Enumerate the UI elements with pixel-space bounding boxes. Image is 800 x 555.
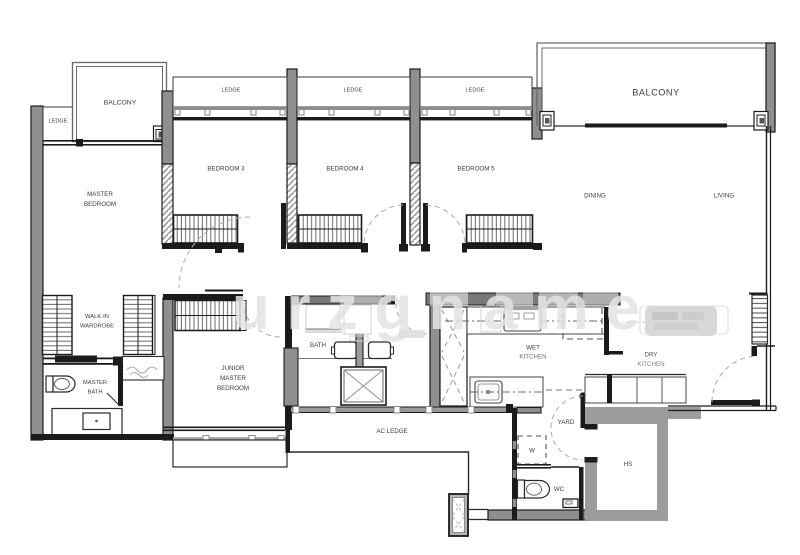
- svg-text:WET: WET: [526, 345, 540, 352]
- svg-text:YARD: YARD: [558, 419, 575, 426]
- svg-text:BALCONY: BALCONY: [632, 88, 679, 98]
- svg-text:W: W: [529, 448, 535, 455]
- svg-text:BATH: BATH: [87, 390, 102, 396]
- svg-text:BEDROOM: BEDROOM: [217, 385, 249, 392]
- svg-text:WALK-IN: WALK-IN: [85, 314, 109, 320]
- svg-text:BEDROOM: BEDROOM: [84, 201, 116, 208]
- svg-text:LEDGE: LEDGE: [344, 88, 363, 94]
- svg-text:LIVING: LIVING: [714, 193, 734, 200]
- svg-text:WARDROBE: WARDROBE: [80, 324, 114, 330]
- svg-text:BALCONY: BALCONY: [104, 100, 137, 107]
- svg-text:LEDGE: LEDGE: [222, 88, 241, 94]
- svg-text:BEDROOM 4: BEDROOM 4: [326, 166, 364, 173]
- svg-text:BEDROOM 3: BEDROOM 3: [207, 166, 245, 173]
- svg-text:LEDGE: LEDGE: [466, 88, 485, 94]
- svg-text:BATH: BATH: [310, 342, 326, 349]
- svg-text:AC LEDGE: AC LEDGE: [376, 428, 407, 435]
- svg-text:KITCHEN: KITCHEN: [519, 354, 546, 361]
- svg-text:BEDROOM 5: BEDROOM 5: [457, 166, 495, 173]
- svg-text:WC: WC: [554, 486, 565, 493]
- svg-text:MASTER: MASTER: [87, 191, 113, 198]
- svg-text:HS: HS: [624, 461, 633, 468]
- svg-text:MASTER: MASTER: [220, 375, 246, 382]
- svg-text:KITCHEN: KITCHEN: [637, 361, 664, 368]
- svg-text:JUNIOR: JUNIOR: [221, 365, 245, 372]
- svg-text:MASTER: MASTER: [83, 380, 107, 386]
- svg-text:DINING: DINING: [584, 193, 606, 200]
- svg-text:DRY: DRY: [645, 352, 658, 359]
- svg-text:urzgname: urzgname: [232, 274, 640, 343]
- svg-text:LEDGE: LEDGE: [49, 119, 68, 125]
